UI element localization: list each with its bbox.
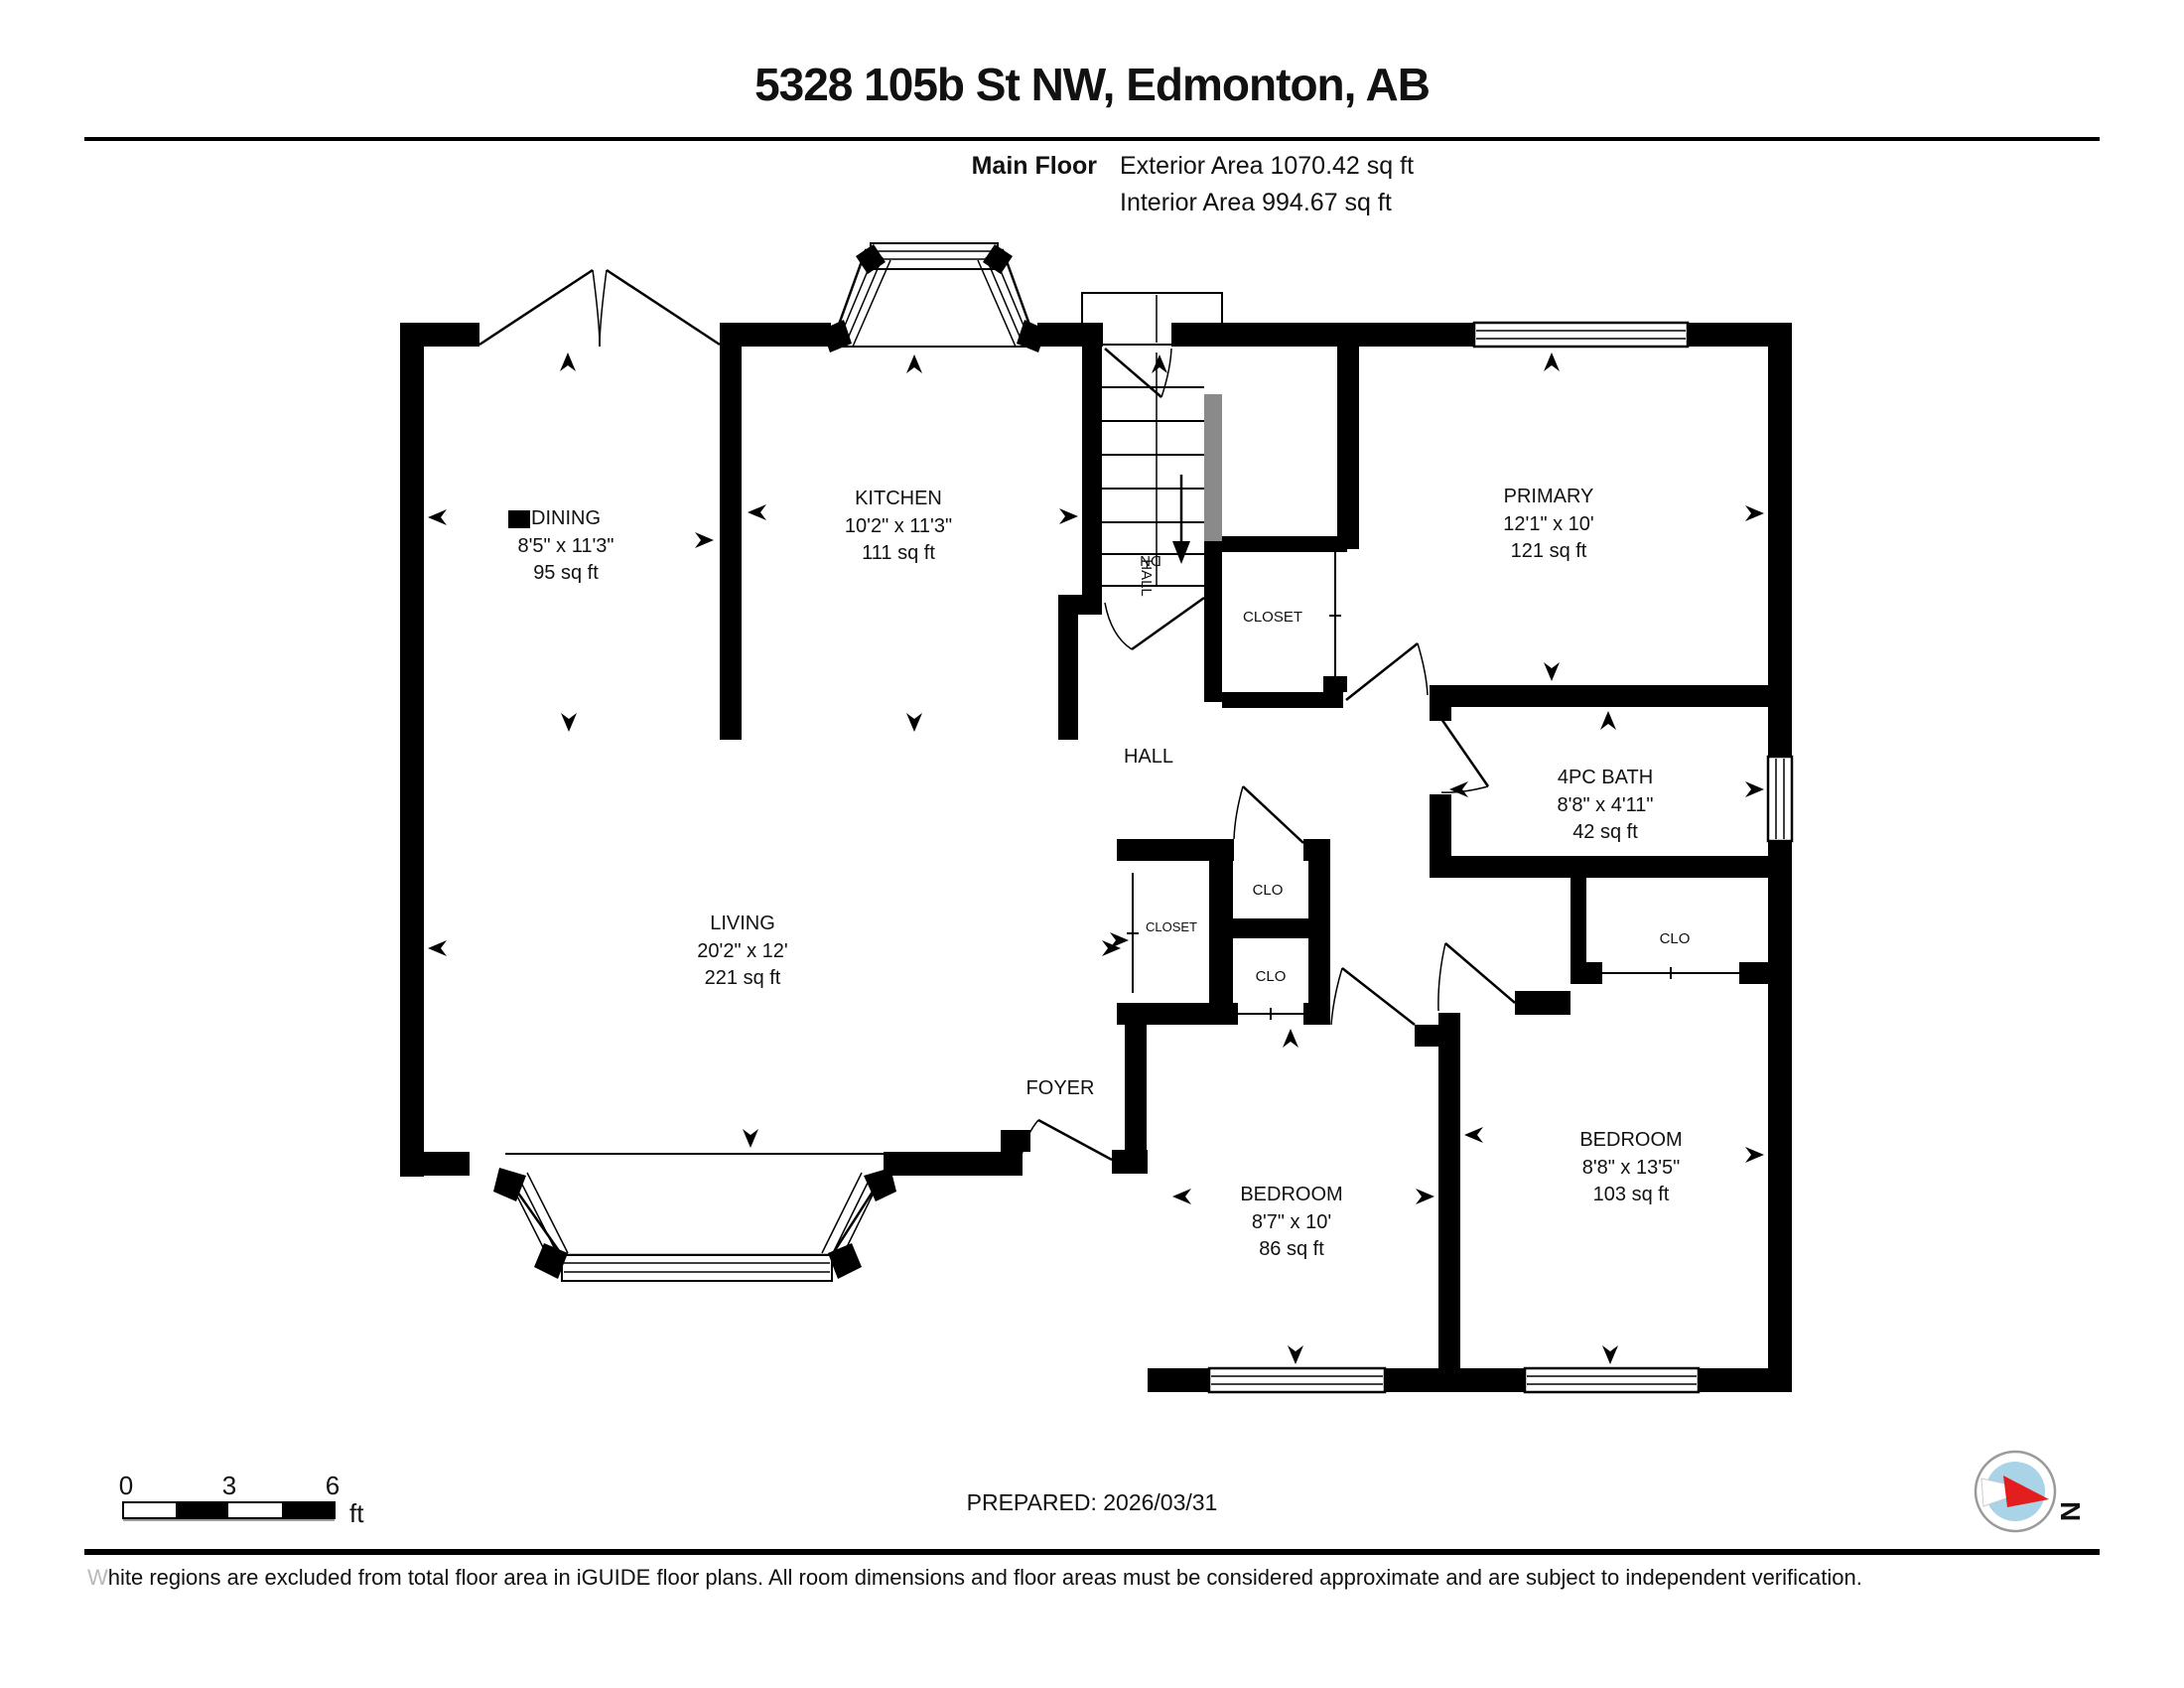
- scale-bar: 0 3 6 ft: [119, 1471, 364, 1528]
- svg-text:8'7" x 10': 8'7" x 10': [1252, 1211, 1331, 1233]
- label-foyer: FOYER: [1026, 1077, 1095, 1099]
- bedroom-right-window: [1525, 1368, 1699, 1392]
- svg-text:KITCHEN: KITCHEN: [855, 488, 942, 509]
- svg-text:121 sq ft: 121 sq ft: [1511, 540, 1587, 562]
- svg-text:86 sq ft: 86 sq ft: [1259, 1238, 1324, 1260]
- stair-half-wall: [1204, 394, 1222, 541]
- svg-text:BEDROOM: BEDROOM: [1240, 1184, 1342, 1205]
- bath-door: [1441, 719, 1488, 786]
- svg-text:6: 6: [326, 1471, 340, 1500]
- bedroom-right-door: [1445, 943, 1515, 1003]
- room-label-primary: PRIMARY 12'1" x 10' 121 sq ft: [1503, 486, 1593, 562]
- label-closet-primary: CLOSET: [1243, 609, 1302, 626]
- svg-text:3: 3: [222, 1471, 236, 1500]
- svg-text:221 sq ft: 221 sq ft: [705, 967, 781, 989]
- svg-text:LIVING: LIVING: [710, 913, 775, 934]
- label-hall-stairs: HALL: [1138, 559, 1155, 597]
- label-clo-top: CLO: [1253, 882, 1284, 899]
- svg-text:111 sq ft: 111 sq ft: [862, 542, 935, 564]
- bedroom-left-door: [1342, 968, 1415, 1025]
- patio-door-left-leaf: [479, 270, 593, 345]
- svg-text:DINING: DINING: [531, 507, 601, 529]
- kitchen-bay-window: [822, 243, 1046, 352]
- primary-door: [1346, 643, 1418, 700]
- label-clo-bedroom: CLO: [1660, 930, 1691, 947]
- bedroom-left-window: [1209, 1368, 1385, 1392]
- side-entry-door: [1105, 349, 1161, 397]
- compass-north-label: N: [2055, 1501, 2086, 1521]
- living-bay-window: [493, 1154, 896, 1281]
- clo-top-door: [1243, 786, 1303, 843]
- label-closet-hall: CLOSET: [1146, 919, 1197, 934]
- room-label-living: LIVING 20'2" x 12' 221 sq ft: [697, 913, 787, 989]
- walls: [400, 323, 1792, 1392]
- svg-text:12'1" x 10': 12'1" x 10': [1503, 513, 1593, 535]
- doors: [479, 270, 1739, 1160]
- bath-window: [1768, 757, 1792, 841]
- svg-text:PRIMARY: PRIMARY: [1504, 486, 1594, 507]
- room-label-bedroom-right: BEDROOM 8'8" x 13'5" 103 sq ft: [1579, 1129, 1682, 1205]
- svg-text:0: 0: [119, 1471, 133, 1500]
- svg-text:103 sq ft: 103 sq ft: [1593, 1184, 1670, 1205]
- svg-text:BEDROOM: BEDROOM: [1579, 1129, 1682, 1151]
- label-clo-bottom: CLO: [1256, 968, 1287, 985]
- patio-door-right-leaf: [607, 270, 720, 345]
- stair-hall-door: [1132, 598, 1204, 649]
- svg-text:20'2" x 12': 20'2" x 12': [697, 940, 787, 962]
- svg-text:8'8" x 13'5": 8'8" x 13'5": [1582, 1157, 1681, 1179]
- svg-text:95 sq ft: 95 sq ft: [533, 562, 599, 584]
- floor-plan-canvas: DINING 8'5" x 11'3" 95 sq ft KITCHEN 10'…: [0, 0, 2184, 1688]
- header-rule: [84, 137, 2100, 141]
- svg-text:10'2" x 11'3": 10'2" x 11'3": [845, 515, 952, 537]
- label-hall: HALL: [1124, 746, 1173, 768]
- svg-text:8'8" x 4'11": 8'8" x 4'11": [1557, 794, 1653, 816]
- compass-icon: N: [1976, 1452, 2086, 1531]
- footer-rule: [84, 1549, 2100, 1555]
- svg-text:8'5" x 11'3": 8'5" x 11'3": [517, 535, 614, 557]
- svg-text:42 sq ft: 42 sq ft: [1572, 821, 1638, 843]
- room-label-bath: 4PC BATH 8'8" x 4'11" 42 sq ft: [1557, 767, 1653, 843]
- room-label-bedroom-left: BEDROOM 8'7" x 10' 86 sq ft: [1240, 1184, 1342, 1260]
- room-label-dining: DINING 8'5" x 11'3" 95 sq ft: [517, 507, 614, 584]
- primary-window: [1474, 323, 1688, 347]
- front-door: [1038, 1120, 1112, 1160]
- scale-unit: ft: [349, 1498, 364, 1528]
- room-label-kitchen: KITCHEN 10'2" x 11'3" 111 sq ft: [845, 488, 952, 564]
- svg-text:4PC BATH: 4PC BATH: [1558, 767, 1653, 788]
